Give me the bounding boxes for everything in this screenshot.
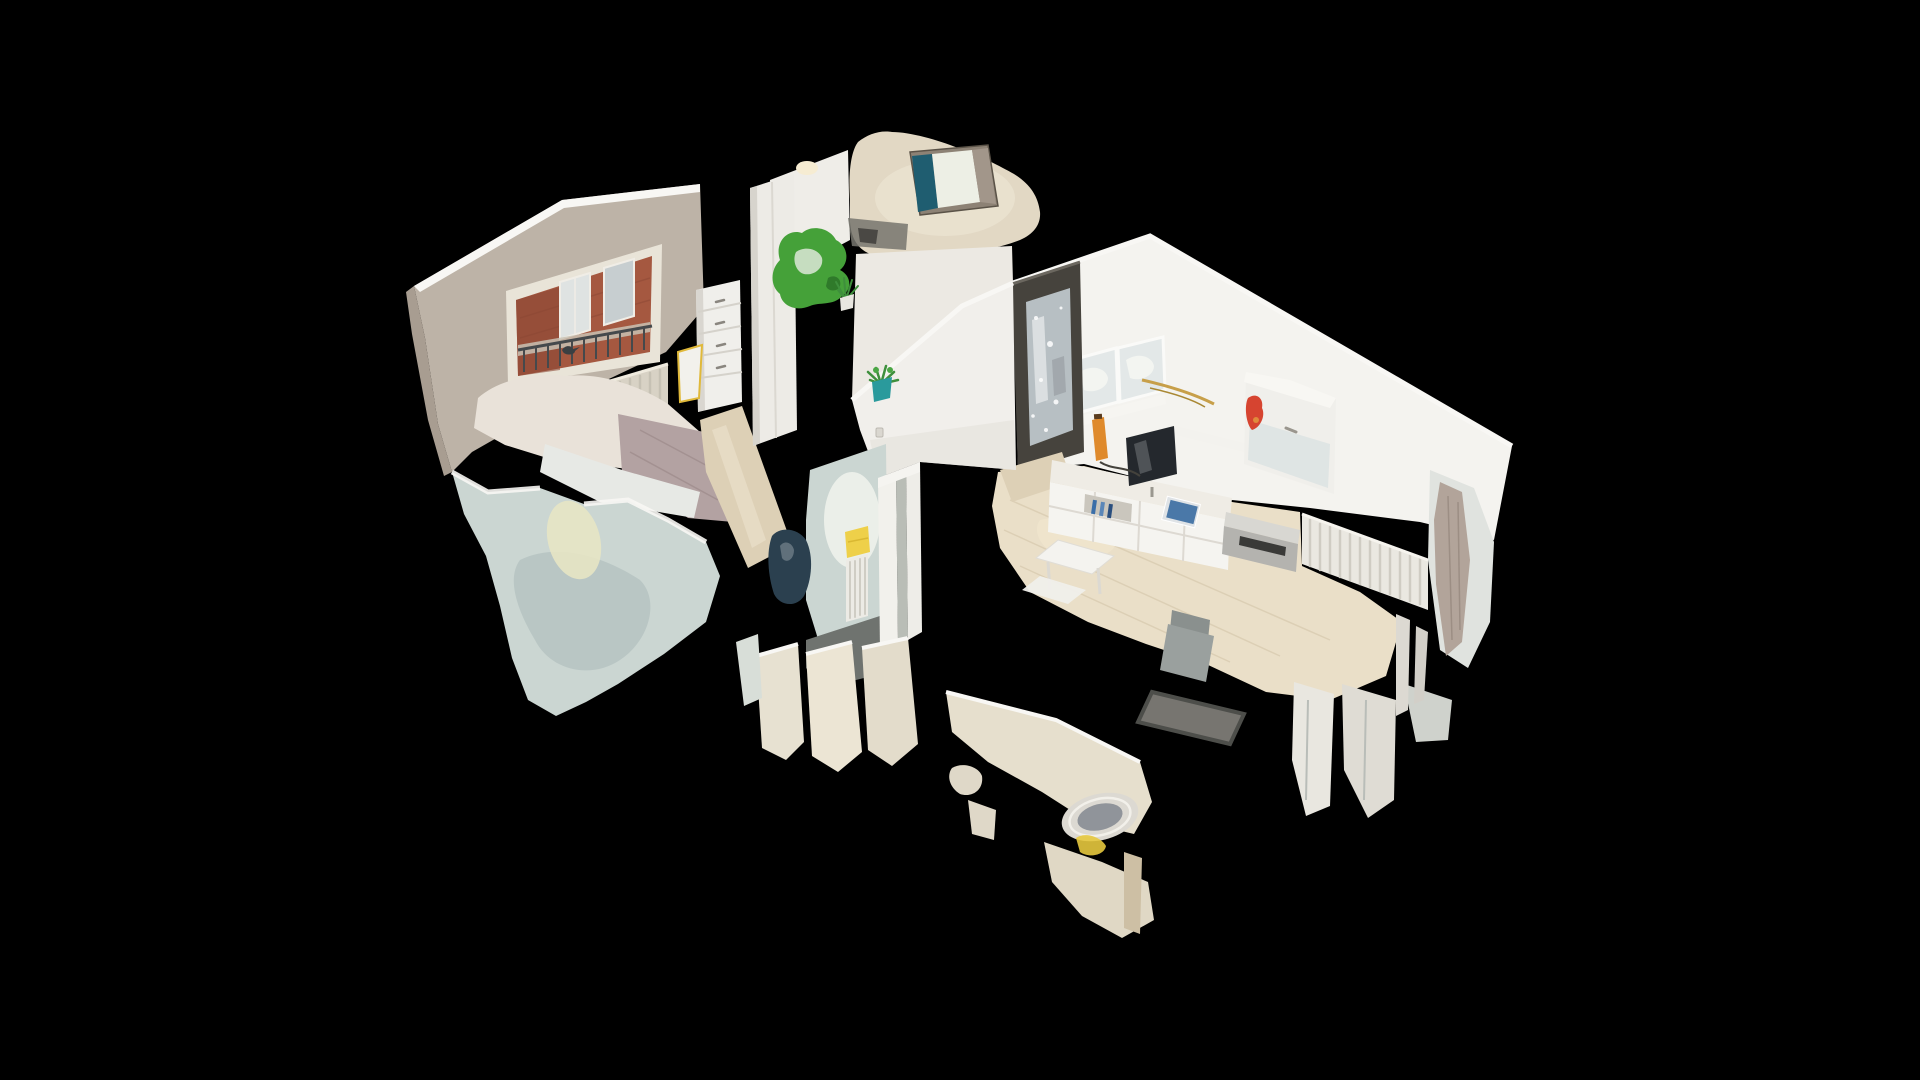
table-leg <box>1098 568 1100 594</box>
hanging-shard <box>1396 614 1410 716</box>
facade-window-right <box>604 259 634 325</box>
plant-leaf <box>873 367 879 373</box>
wall-pillar <box>1124 852 1142 934</box>
bathroom-door-frame <box>878 472 898 652</box>
brick-shadow <box>516 287 560 376</box>
bottle-cap <box>1094 414 1102 420</box>
bathroom-door-frame <box>906 462 922 640</box>
wall-fragment <box>862 638 918 766</box>
wall-art-center <box>932 150 980 208</box>
coat-rack-shadow <box>826 276 840 290</box>
shelf-clutter-dark <box>858 228 878 244</box>
wall-fragment <box>806 642 862 772</box>
ceiling-lamp <box>796 161 818 175</box>
light-switch <box>876 428 883 437</box>
dark-object <box>768 530 811 604</box>
plant-leaf <box>887 367 893 373</box>
doorway-gap <box>896 470 908 644</box>
door-frosted-glass <box>1026 288 1073 446</box>
glass-shadow <box>1052 356 1066 396</box>
red-decor-orange-bit <box>1253 417 1259 423</box>
wall-fragment <box>756 644 804 760</box>
scan-viewer-canvas[interactable] <box>0 0 1920 1080</box>
ironing-board <box>678 345 702 402</box>
dollhouse-3d-model[interactable] <box>0 0 1920 1080</box>
